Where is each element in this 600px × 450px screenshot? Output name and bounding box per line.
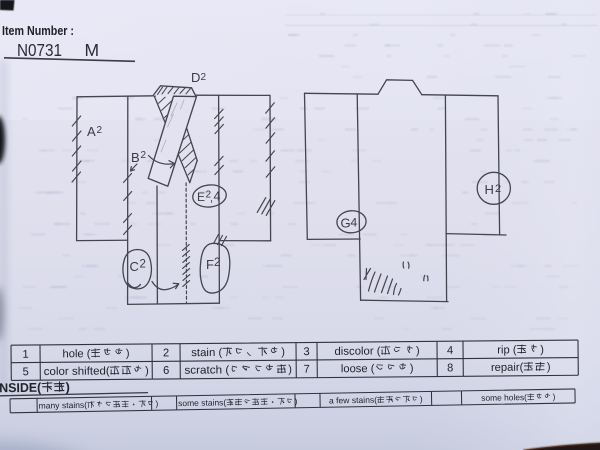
svg-text:M: M — [85, 40, 100, 60]
svg-text:H: H — [485, 182, 494, 197]
svg-text:some holes(: some holes( — [481, 392, 527, 403]
svg-text:): ) — [66, 379, 71, 394]
svg-text:2: 2 — [97, 125, 103, 136]
svg-text:color shifted(: color shifted( — [44, 365, 110, 378]
svg-text:1: 1 — [22, 349, 28, 361]
svg-text:A: A — [87, 124, 96, 139]
svg-text:5: 5 — [23, 366, 29, 378]
svg-text:): ) — [552, 392, 555, 402]
svg-text:4: 4 — [214, 190, 221, 204]
svg-text:G: G — [341, 216, 351, 231]
svg-text:N0731: N0731 — [17, 40, 62, 60]
svg-text:): ) — [540, 344, 544, 356]
svg-text:repair(: repair( — [491, 362, 524, 374]
svg-text:D: D — [191, 70, 200, 85]
svg-text:discolor (: discolor ( — [334, 345, 380, 357]
svg-text:): ) — [420, 394, 423, 404]
svg-text:INSIDE(: INSIDE( — [0, 380, 42, 396]
svg-text:B: B — [131, 150, 140, 165]
svg-text:scratch (: scratch ( — [184, 364, 229, 376]
svg-text:stain (: stain ( — [191, 347, 222, 359]
svg-text:a few stains(: a few stains( — [329, 395, 377, 406]
svg-text:F: F — [206, 257, 214, 272]
svg-text:): ) — [294, 396, 297, 406]
svg-text:C: C — [130, 259, 139, 274]
svg-text:): ) — [155, 399, 158, 409]
svg-text:rip (: rip ( — [497, 344, 517, 356]
svg-text:6: 6 — [163, 365, 169, 377]
svg-text:): ) — [416, 345, 420, 357]
svg-text:many stains(: many stains( — [39, 400, 88, 411]
svg-text:4: 4 — [447, 345, 453, 357]
svg-text:Item Number :: Item Number : — [2, 24, 74, 38]
svg-text:4: 4 — [351, 216, 358, 230]
svg-text:E: E — [197, 190, 205, 204]
svg-text:loose (: loose ( — [341, 363, 375, 375]
svg-text:hole (: hole ( — [62, 348, 90, 360]
svg-text:2: 2 — [140, 259, 146, 271]
svg-text:some stains(: some stains( — [178, 397, 226, 408]
svg-text:2: 2 — [201, 72, 207, 83]
svg-text:2: 2 — [495, 183, 501, 195]
svg-text:): ) — [410, 363, 414, 375]
svg-text:): ) — [126, 348, 130, 360]
svg-text:): ) — [288, 364, 292, 376]
svg-text:2: 2 — [163, 347, 169, 359]
svg-text:3: 3 — [303, 346, 309, 358]
svg-text:): ) — [281, 346, 285, 358]
svg-text:2: 2 — [214, 257, 220, 269]
svg-text:2: 2 — [141, 150, 147, 161]
svg-text:): ) — [547, 361, 551, 373]
svg-text:7: 7 — [304, 364, 310, 376]
svg-text:8: 8 — [447, 362, 453, 374]
svg-text:): ) — [145, 365, 149, 377]
